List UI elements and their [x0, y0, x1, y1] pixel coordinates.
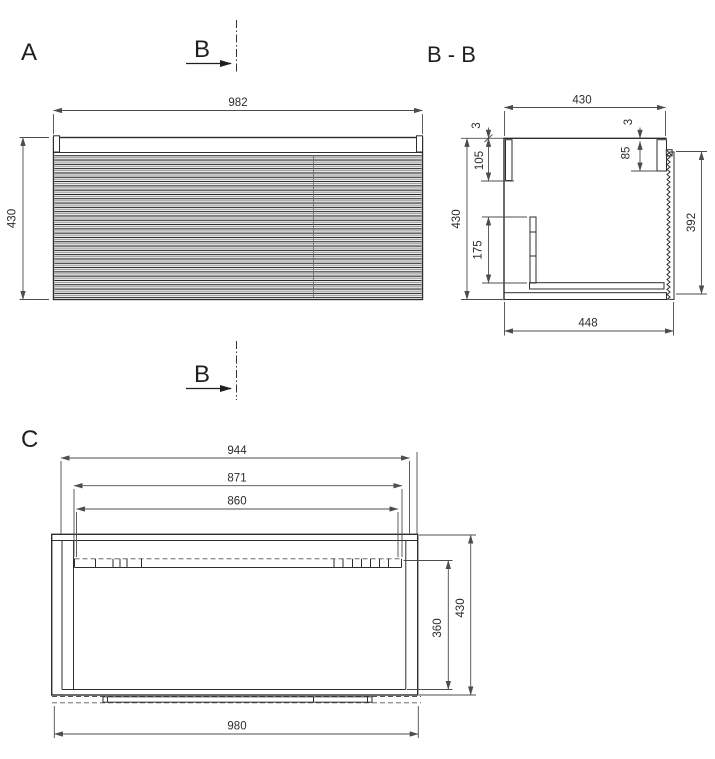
drawing-svg: A 982 430 B B [0, 0, 715, 759]
drawer-bottom-section [530, 283, 665, 289]
view-bb-dim-left: 3 105 [471, 122, 514, 181]
dim-85: 85 [621, 147, 633, 160]
section-marker-top-label: B [194, 36, 210, 63]
fluted-front-texture [55, 155, 422, 298]
view-bb-dim-front: 392 [676, 152, 707, 295]
view-bb-dim-right: 3 85 [621, 119, 658, 171]
view-c-dim-944: 944 [61, 445, 417, 534]
dim-430-section: 430 [451, 209, 463, 228]
section-marker-bottom: B [186, 341, 237, 400]
dim-980: 980 [227, 721, 246, 733]
view-a-dim-width: 982 [54, 97, 423, 134]
dim-105: 105 [474, 151, 486, 170]
left-top-tab [54, 136, 60, 152]
view-c-dim-980: 980 [54, 706, 418, 738]
dim-860: 860 [227, 496, 246, 508]
dim-430-bottom: 430 [455, 598, 467, 617]
view-c-bottom: C [21, 426, 476, 738]
view-bb-label: B - B [427, 42, 476, 67]
view-a-cabinet-outline [54, 136, 423, 300]
view-c-label: C [21, 426, 38, 453]
dim-392: 392 [686, 213, 698, 232]
view-a-dim-height: 430 [7, 138, 50, 300]
drawer-back-section [530, 217, 536, 283]
dim-944: 944 [227, 445, 247, 457]
dim-430-front: 430 [7, 209, 19, 228]
view-bb-dim-depth: 448 [505, 302, 674, 336]
dim-448: 448 [578, 318, 597, 330]
dim-430-top: 430 [572, 95, 591, 107]
cabinet-bottom-section [504, 293, 667, 300]
dim-360: 360 [432, 618, 444, 637]
view-a-front: A 982 430 [7, 39, 423, 300]
dim-3-left: 3 [471, 122, 483, 128]
technical-drawing-page: A 982 430 B B [0, 0, 715, 759]
dim-982: 982 [228, 97, 247, 109]
dim-175: 175 [473, 240, 485, 259]
back-panel-section [506, 140, 513, 181]
right-top-tab [417, 136, 423, 152]
dim-871: 871 [227, 473, 246, 485]
section-marker-top: B [186, 20, 237, 73]
section-marker-bottom-label: B [194, 361, 210, 388]
plinth-bar [103, 697, 372, 702]
dim-3-right: 3 [623, 119, 635, 125]
view-c-dim-430: 430 [419, 535, 476, 695]
view-bb-dim-top-width: 430 [505, 95, 666, 137]
view-bb-dim-drawer: 175 [473, 217, 528, 283]
front-rail-section [657, 140, 667, 171]
view-c-geometry [52, 534, 421, 703]
plinth [52, 697, 421, 703]
view-bb-geometry [504, 138, 674, 299]
fluted-front-section [667, 152, 674, 300]
view-a-label: A [21, 39, 37, 66]
view-bb-section: B - B 430 3 [427, 42, 707, 336]
